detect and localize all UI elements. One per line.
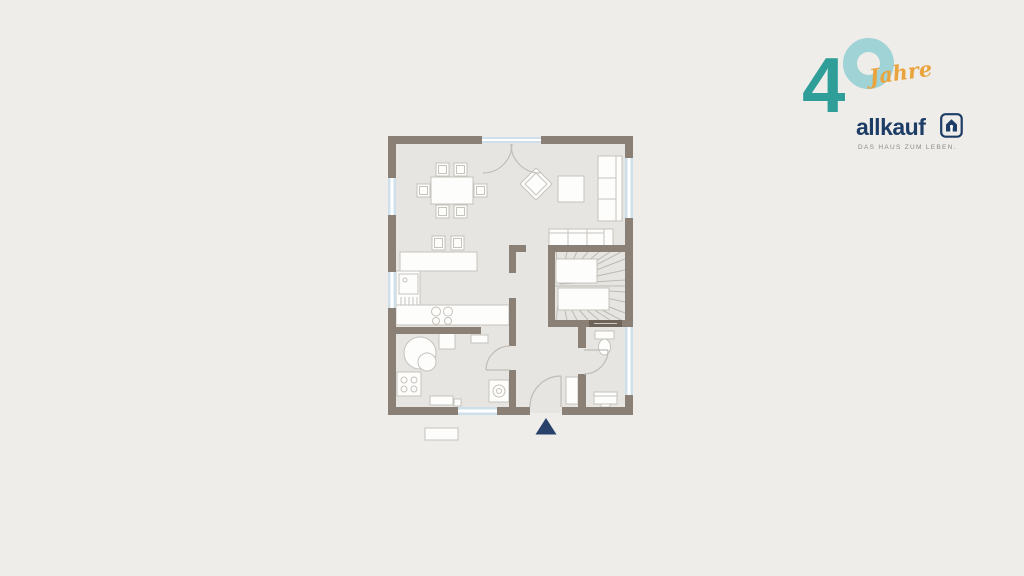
window-right-wc <box>625 327 633 395</box>
kitchen-island <box>400 252 477 271</box>
house-icon <box>940 113 963 143</box>
light-well <box>425 428 458 440</box>
patio-door-glazing <box>482 137 541 143</box>
water-heater <box>439 333 455 349</box>
wardrobe <box>566 377 578 404</box>
window-left-upper <box>388 178 396 215</box>
sofa-right <box>598 156 622 221</box>
brand-tagline: DAS HAUS ZUM LEBEN. <box>858 144 957 151</box>
utility-bench <box>430 396 453 405</box>
brand-name: allkauf <box>856 116 925 139</box>
allkauf-logo: 4 Jahre allkauf DAS HAUS ZUM LEBEN. <box>800 30 1000 130</box>
utility-shelf <box>471 335 488 343</box>
washing-machine <box>489 380 509 402</box>
kitchen-counter-bottom <box>396 305 509 325</box>
window-left-lower <box>388 272 396 308</box>
dining-table <box>431 177 473 204</box>
side-table <box>558 176 584 202</box>
utility-box <box>454 399 461 406</box>
window-right-living <box>625 158 633 218</box>
entrance-marker-icon <box>536 418 557 435</box>
anniversary-number: 4 <box>802 46 843 124</box>
heating-manifold <box>397 372 421 396</box>
shaft-label <box>589 320 622 327</box>
floorplan-canvas: 4 Jahre allkauf DAS HAUS ZUM LEBEN. <box>0 0 1024 576</box>
sofa-bottom <box>549 229 613 246</box>
window-bottom-utility <box>458 407 497 415</box>
